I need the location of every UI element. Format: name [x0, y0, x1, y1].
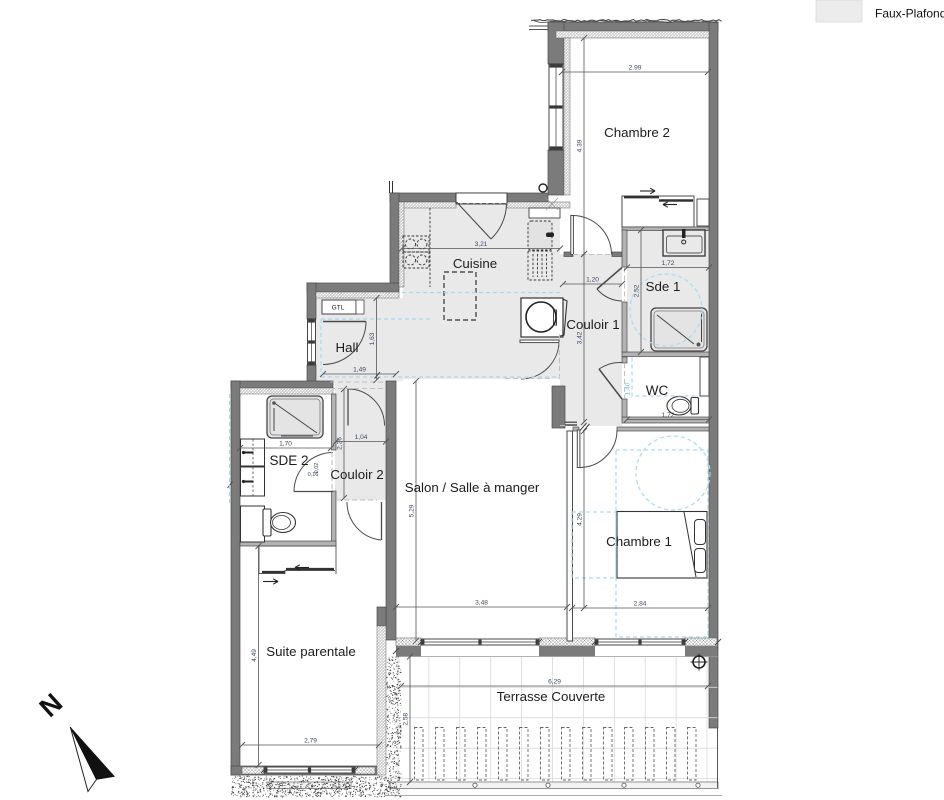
- svg-text:2,84: 2,84: [634, 601, 647, 608]
- svg-text:Terrasse Couverte: Terrasse Couverte: [497, 689, 606, 704]
- svg-text:1,20: 1,20: [586, 277, 599, 284]
- svg-text:Faux-Plafond: Faux-Plafond: [875, 7, 944, 21]
- svg-text:4.39: 4.39: [577, 139, 584, 152]
- svg-text:Chambre 2: Chambre 2: [604, 125, 670, 140]
- svg-text:5,29: 5,29: [409, 504, 416, 517]
- svg-text:2,26: 2,26: [337, 437, 344, 450]
- svg-text:1,72: 1,72: [662, 412, 675, 419]
- svg-text:Chambre 1: Chambre 1: [606, 534, 672, 549]
- svg-text:SDE 2: SDE 2: [269, 453, 308, 468]
- svg-text:Couloir 2: Couloir 2: [330, 467, 383, 482]
- svg-text:3,21: 3,21: [475, 241, 488, 248]
- svg-text:1,63: 1,63: [369, 332, 376, 345]
- svg-text:GTL: GTL: [332, 305, 345, 312]
- svg-text:Cuisine: Cuisine: [453, 256, 497, 271]
- svg-text:Suite parentale: Suite parentale: [266, 644, 355, 659]
- svg-text:Hall: Hall: [336, 340, 359, 355]
- svg-text:2,58: 2,58: [403, 713, 410, 726]
- svg-text:3,42: 3,42: [577, 331, 584, 344]
- svg-text:6,29: 6,29: [548, 679, 561, 686]
- svg-text:WC: WC: [646, 383, 669, 398]
- svg-text:2.99: 2.99: [629, 65, 642, 72]
- svg-text:2,79: 2,79: [304, 738, 317, 745]
- svg-text:Salon / Salle à manger: Salon / Salle à manger: [405, 480, 540, 495]
- svg-text:1,49: 1,49: [353, 367, 366, 374]
- svg-text:1,04: 1,04: [355, 434, 368, 441]
- svg-text:Sde 1: Sde 1: [646, 279, 681, 294]
- svg-text:0,16: 0,16: [308, 472, 319, 478]
- svg-text:4,29: 4,29: [577, 513, 584, 526]
- svg-text:2,52: 2,52: [634, 284, 641, 297]
- svg-text:1,40: 1,40: [625, 382, 632, 395]
- svg-text:1,72: 1,72: [662, 260, 675, 267]
- svg-text:3,48: 3,48: [475, 600, 488, 607]
- svg-text:Couloir 1: Couloir 1: [566, 317, 619, 332]
- svg-text:1,70: 1,70: [279, 441, 292, 448]
- svg-text:4,49: 4,49: [251, 649, 258, 662]
